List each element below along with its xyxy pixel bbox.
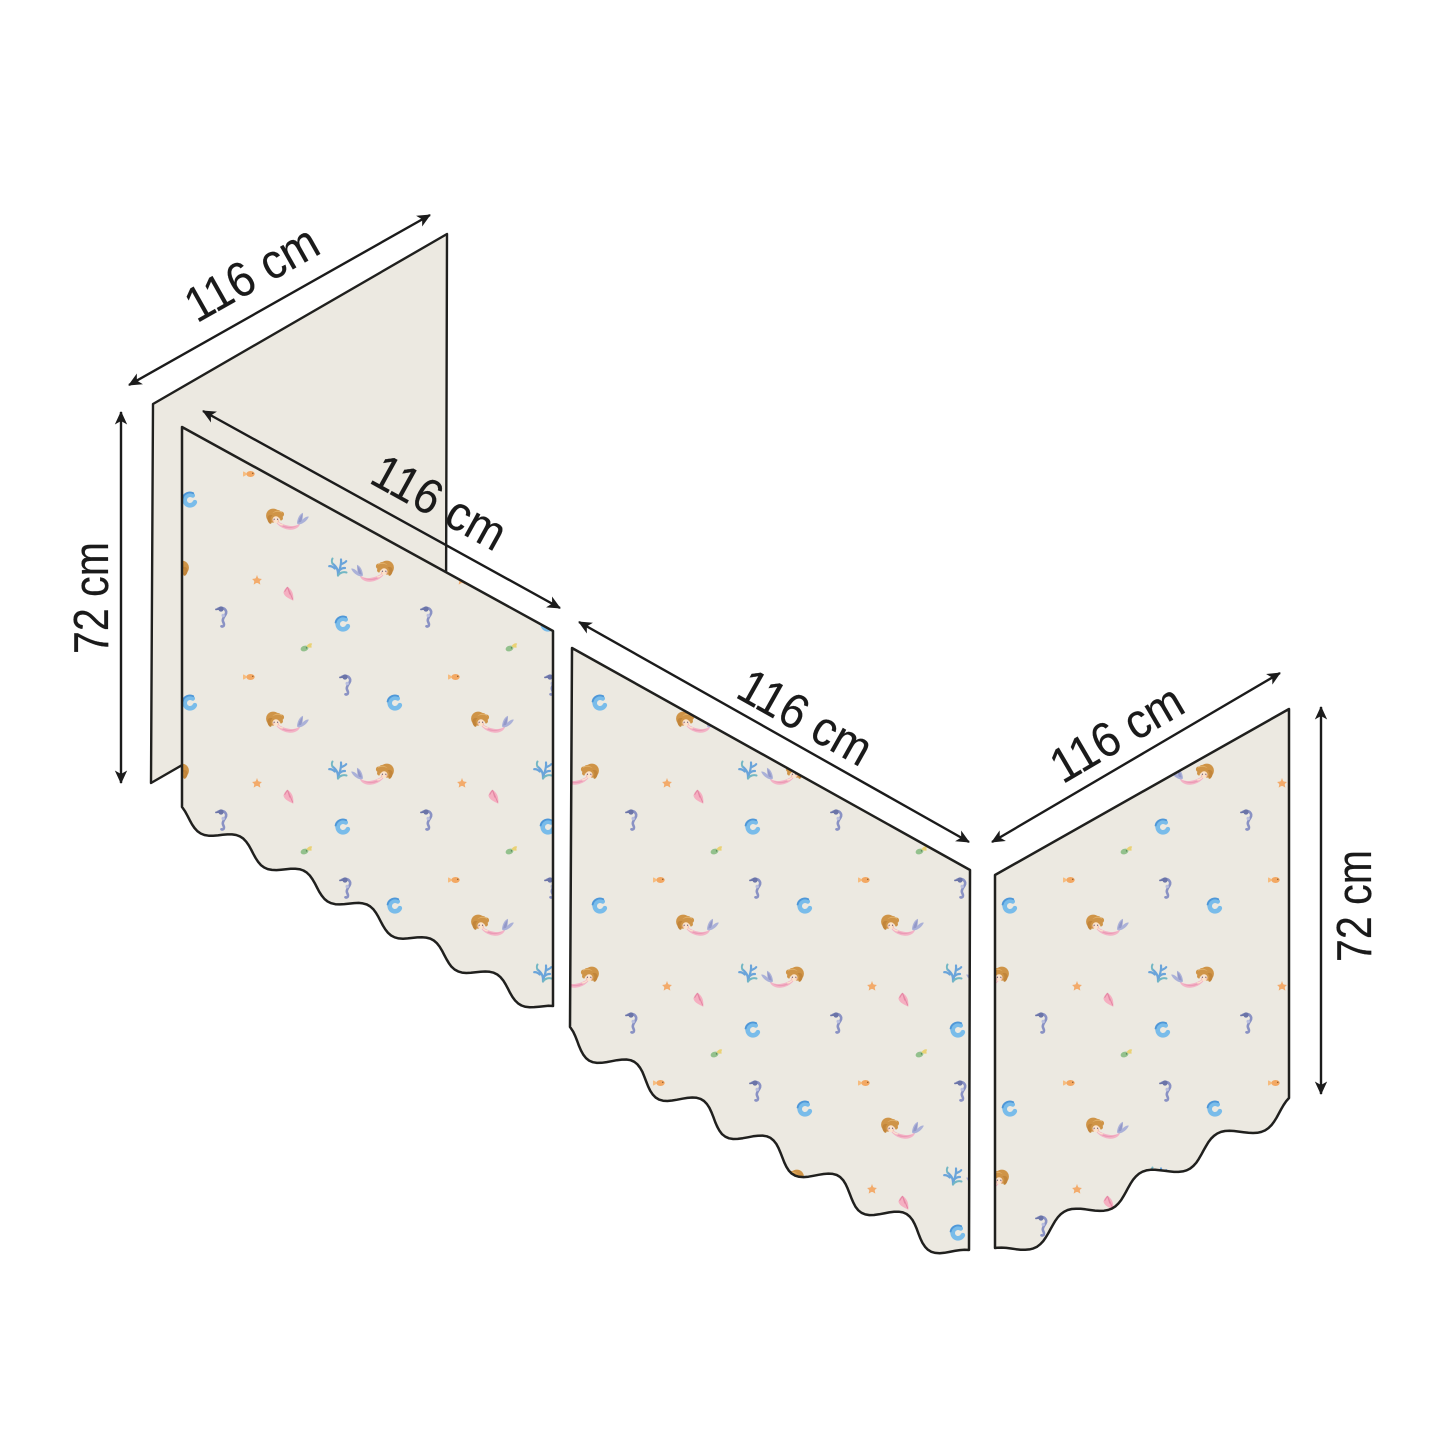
svg-text:72 cm: 72 cm bbox=[1328, 850, 1382, 962]
svg-text:72 cm: 72 cm bbox=[65, 542, 119, 654]
